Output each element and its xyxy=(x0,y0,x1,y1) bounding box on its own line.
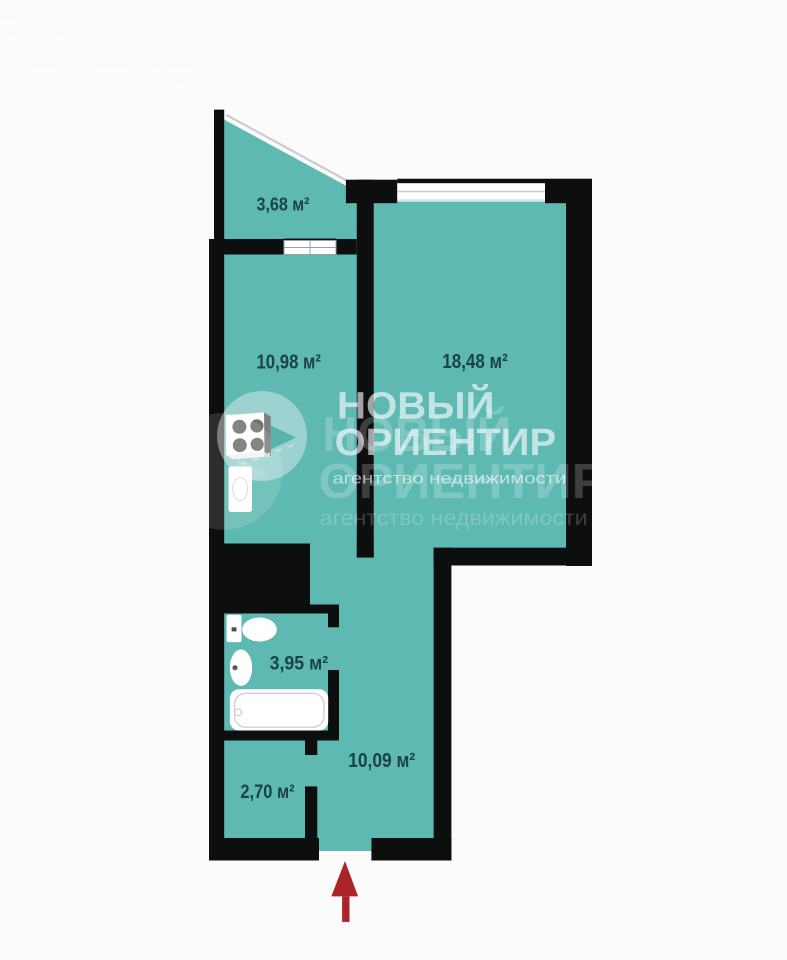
svg-text:3,95 м²: 3,95 м² xyxy=(270,654,329,675)
svg-text:10,09 м²: 10,09 м² xyxy=(348,750,415,772)
svg-text:3,68 м²: 3,68 м² xyxy=(257,194,310,214)
svg-text:2,70 м²: 2,70 м² xyxy=(240,782,294,803)
svg-text:18,48 м²: 18,48 м² xyxy=(442,351,508,373)
svg-text:10,98 м²: 10,98 м² xyxy=(257,351,322,373)
svg-text:агентство недвижимости: агентство недвижимости xyxy=(320,507,588,530)
